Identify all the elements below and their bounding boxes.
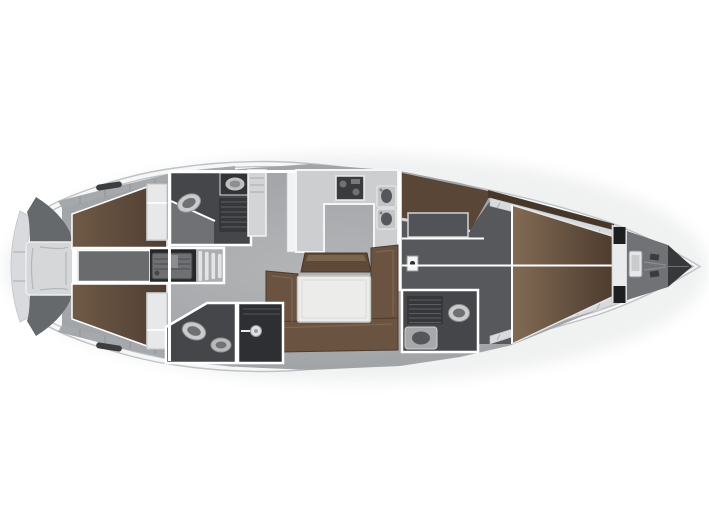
wardrobe-body bbox=[248, 170, 266, 236]
engine-and-companionway bbox=[74, 248, 224, 283]
sink-bowl-1 bbox=[381, 189, 392, 203]
faucet-2 bbox=[380, 212, 383, 215]
salon-table[interactable] bbox=[298, 276, 371, 322]
engine-hatch bbox=[78, 251, 150, 282]
chain-stopper-1 bbox=[650, 253, 660, 260]
shower-head-dot bbox=[254, 329, 258, 333]
washbasin-port-bowl bbox=[230, 181, 241, 188]
washbasin-starboard-bowl bbox=[216, 342, 227, 349]
stove-burner-1 bbox=[340, 181, 347, 188]
engine-pulley bbox=[155, 271, 160, 276]
faucet-1 bbox=[380, 189, 383, 192]
sideboard-bench-top bbox=[306, 255, 366, 261]
chain-stopper-2 bbox=[650, 270, 660, 277]
toilet-forward-bowl bbox=[453, 309, 465, 318]
sink-bowl-2 bbox=[381, 213, 392, 226]
forward-head bbox=[402, 290, 478, 352]
wardrobe bbox=[248, 170, 266, 236]
floor-plan-canvas bbox=[0, 0, 709, 531]
galley-left-wall bbox=[287, 170, 296, 252]
yacht-floor-plan bbox=[0, 0, 709, 531]
windlass-drum bbox=[632, 255, 640, 271]
vanity-seat bbox=[408, 213, 468, 237]
settee-right-arm bbox=[371, 245, 398, 322]
aft-head-port bbox=[170, 172, 251, 245]
stove-burner-2 bbox=[353, 189, 360, 196]
fwd-washbasin bbox=[412, 332, 430, 345]
stove-rack bbox=[351, 179, 360, 184]
bow-hatch-port bbox=[614, 227, 626, 244]
settee-bottom bbox=[266, 318, 398, 352]
nightstand-starboard bbox=[147, 293, 167, 349]
nightstand-port bbox=[147, 184, 167, 240]
bow-hatch-starboard bbox=[614, 286, 626, 303]
